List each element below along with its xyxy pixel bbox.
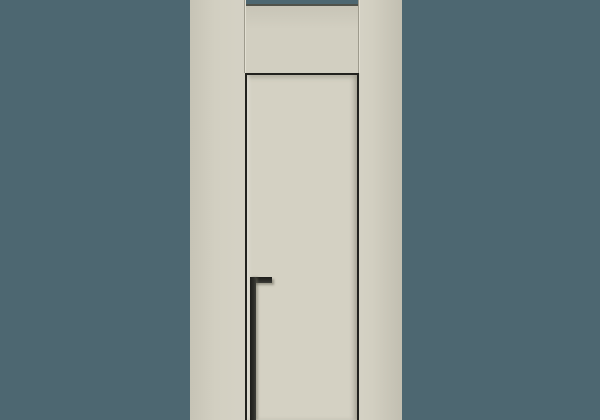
left-wall-panel: [190, 0, 245, 420]
door-gap-right-line: [357, 73, 359, 420]
panel-joint-left: [244, 0, 246, 73]
right-wall-panel: [359, 0, 402, 420]
door-leaf: [247, 75, 357, 420]
transom-panel: [245, 4, 359, 73]
door-handle-vertical-grip: [250, 277, 256, 420]
door-gap-top-line: [245, 73, 359, 76]
panel-joint-right: [358, 0, 360, 73]
door-gap-left-line: [245, 73, 247, 420]
door-render-scene: [0, 0, 600, 420]
